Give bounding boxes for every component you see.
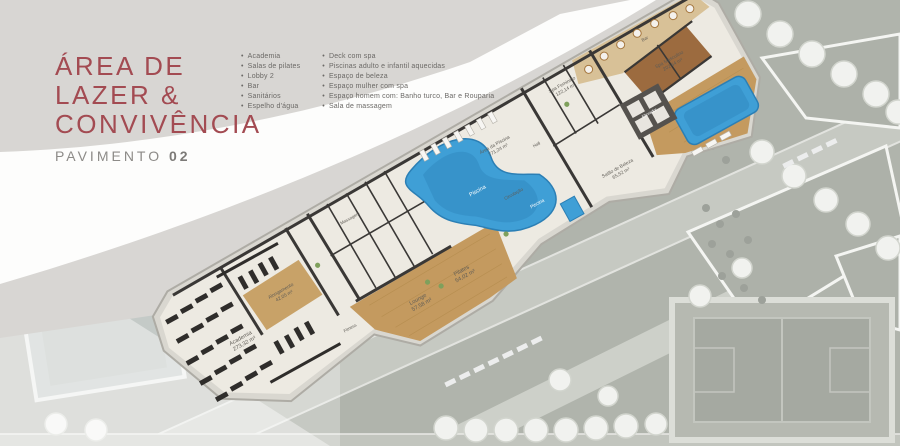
legend-item-label: Espelho d'água <box>248 103 299 110</box>
legend-item: •Espaço mulher com spa <box>322 83 494 90</box>
legend-item-label: Sanitários <box>248 93 281 100</box>
legend-item: •Espaço homem com: Banho turco, Bar e Ro… <box>322 93 494 100</box>
floor-plan-poster: Academia 273,32 m² Alongamento 42,05 m² … <box>0 0 900 446</box>
legend-item: •Espelho d'água <box>241 103 300 110</box>
bullet-icon: • <box>322 73 325 80</box>
legend-item-label: Lobby 2 <box>248 73 274 80</box>
legend-item-label: Espaço de beleza <box>329 73 388 80</box>
tennis-court <box>672 300 892 440</box>
legend-column-2: •Deck com spa •Piscinas adulto e infanti… <box>322 53 494 110</box>
legend-item-label: Espaço homem com: Banho turco, Bar e Rou… <box>329 93 494 100</box>
legend: •Academia •Salas de pilates •Lobby 2 •Ba… <box>241 53 494 110</box>
bullet-icon: • <box>322 83 325 90</box>
bullet-icon: • <box>241 63 244 70</box>
legend-item: •Sanitários <box>241 93 300 100</box>
bullet-icon: • <box>241 103 244 110</box>
page-title-line-3: CONVIVÊNCIA <box>55 110 262 139</box>
legend-item: •Sala de massagem <box>322 103 494 110</box>
legend-item: •Piscinas adulto e infantil aquecidas <box>322 63 494 70</box>
legend-item: •Deck com spa <box>322 53 494 60</box>
bullet-icon: • <box>322 93 325 100</box>
legend-item: •Academia <box>241 53 300 60</box>
floor-subtitle: PAVIMENTO 02 <box>55 148 262 164</box>
legend-item: •Salas de pilates <box>241 63 300 70</box>
legend-item-label: Piscinas adulto e infantil aquecidas <box>329 63 445 70</box>
bullet-icon: • <box>322 103 325 110</box>
legend-item-label: Salas de pilates <box>248 63 301 70</box>
legend-item: •Lobby 2 <box>241 73 300 80</box>
bullet-icon: • <box>241 93 244 100</box>
floor-subtitle-number: 02 <box>169 148 191 164</box>
bullet-icon: • <box>322 53 325 60</box>
page-title-line-2: LAZER & <box>55 81 262 110</box>
legend-item-label: Deck com spa <box>329 53 376 60</box>
bullet-icon: • <box>241 53 244 60</box>
legend-column-1: •Academia •Salas de pilates •Lobby 2 •Ba… <box>241 53 300 110</box>
legend-item-label: Espaço mulher com spa <box>329 83 408 90</box>
title-block: ÁREA DE LAZER & CONVIVÊNCIA PAVIMENTO 02 <box>55 52 262 164</box>
bullet-icon: • <box>322 63 325 70</box>
bullet-icon: • <box>241 73 244 80</box>
legend-item-label: Bar <box>248 83 260 90</box>
legend-item: •Espaço de beleza <box>322 73 494 80</box>
legend-item-label: Academia <box>248 53 281 60</box>
page-title-line-1: ÁREA DE <box>55 52 262 81</box>
bullet-icon: • <box>241 83 244 90</box>
legend-item-label: Sala de massagem <box>329 103 392 110</box>
legend-item: •Bar <box>241 83 300 90</box>
floor-subtitle-prefix: PAVIMENTO <box>55 148 169 164</box>
